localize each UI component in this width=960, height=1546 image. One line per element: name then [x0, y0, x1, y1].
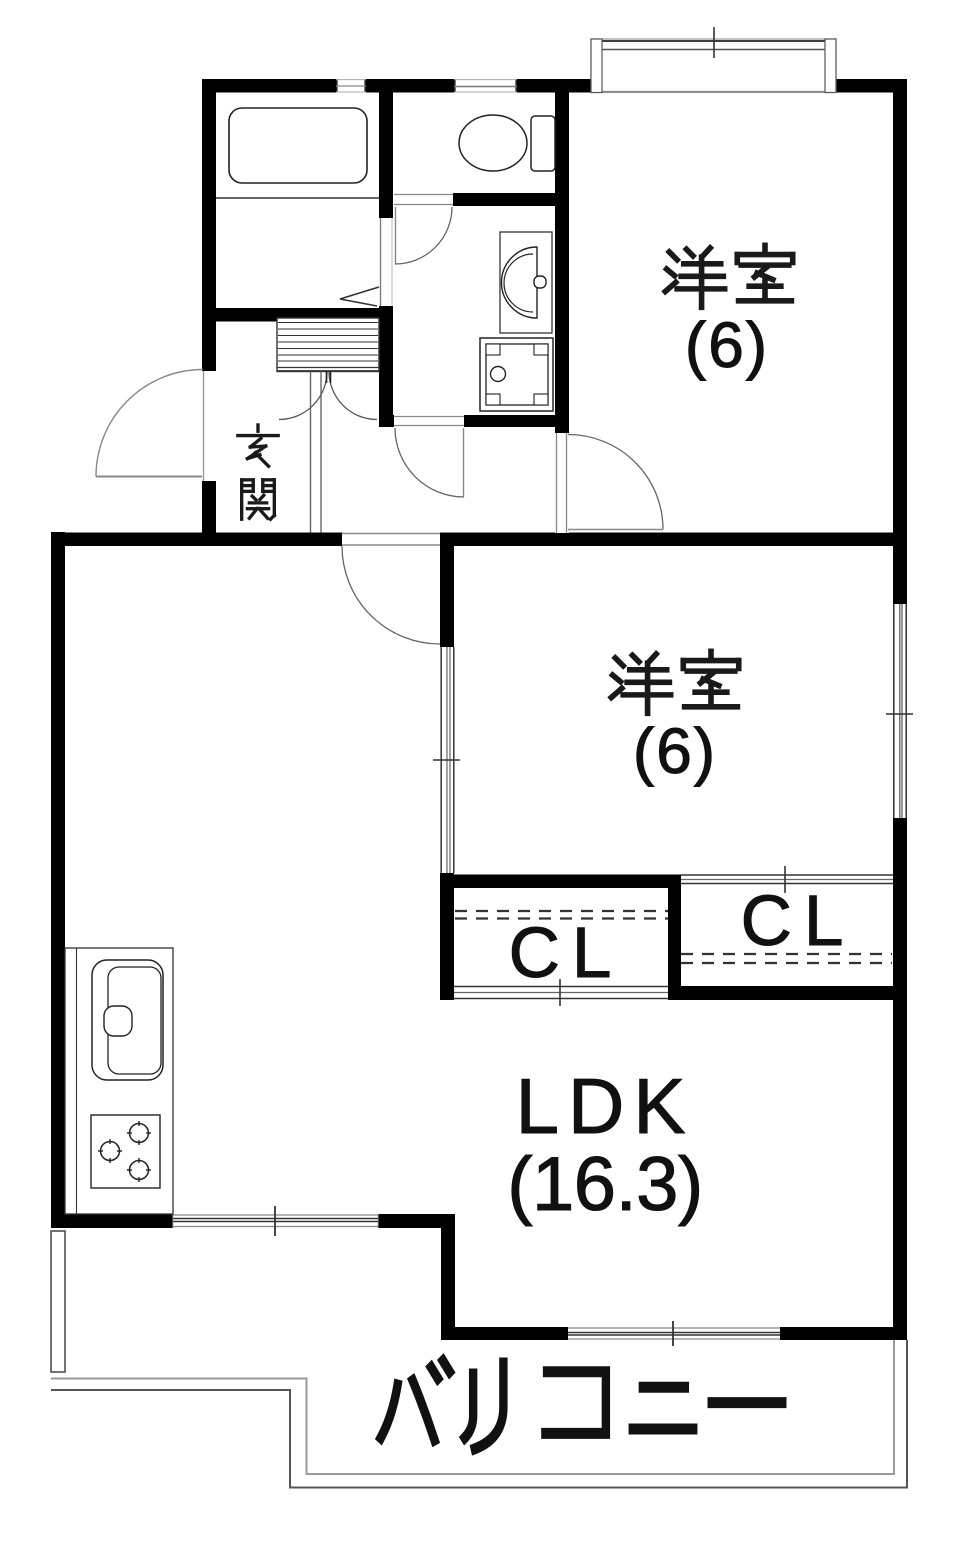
svg-text:LDK: LDK	[516, 1062, 695, 1150]
svg-text:(16.3): (16.3)	[507, 1142, 703, 1227]
svg-text:(6): (6)	[685, 309, 769, 381]
svg-text:CL: CL	[509, 914, 624, 993]
svg-text:CL: CL	[741, 882, 856, 961]
svg-text:(6): (6)	[633, 715, 717, 787]
